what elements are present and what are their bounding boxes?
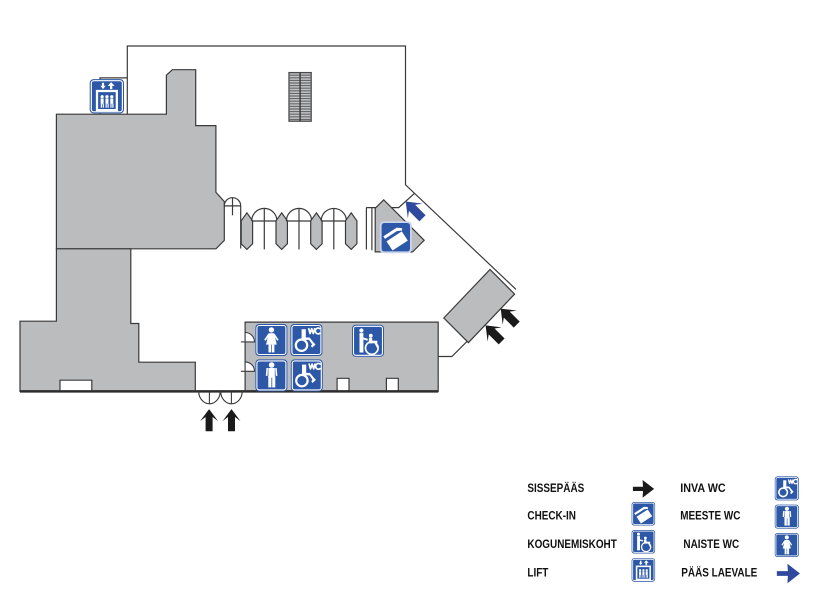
- svg-text:SISSEPÄÄS: SISSEPÄÄS: [527, 481, 584, 495]
- svg-text:MEESTE WC: MEESTE WC: [680, 510, 740, 523]
- svg-text:PÄÄS LAEVALE: PÄÄS LAEVALE: [681, 566, 757, 580]
- svg-text:LIFT: LIFT: [527, 567, 548, 580]
- svg-text:INVA WC: INVA WC: [680, 483, 725, 495]
- svg-text:KOGUNEMISKOHT: KOGUNEMISKOHT: [527, 538, 617, 551]
- svg-text:CHECK-IN: CHECK-IN: [527, 510, 576, 523]
- svg-text:NAISTE WC: NAISTE WC: [683, 538, 739, 551]
